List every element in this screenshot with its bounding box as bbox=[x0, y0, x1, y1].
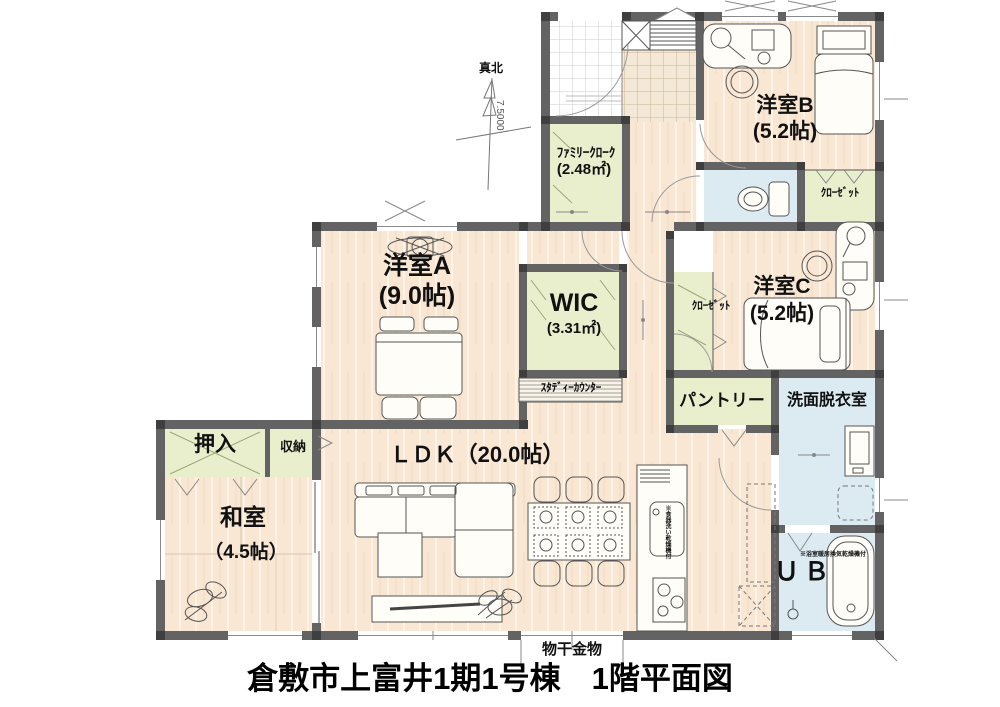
room-size-yoshitsu-a: (9.0帖) bbox=[379, 284, 455, 309]
room-label-family-cloak: ﾌｧﾐﾘｰｸﾛｰｸ bbox=[557, 146, 616, 159]
note-dishwasher: ※食器洗い乾燥機付 bbox=[664, 505, 670, 559]
room-size-family-cloak: (2.48㎡) bbox=[557, 162, 611, 177]
room-size-washitsu: （4.5帖） bbox=[204, 543, 287, 562]
pocket-floor bbox=[527, 231, 619, 264]
room-size-yoshitsu-b: (5.2帖) bbox=[753, 121, 817, 142]
room-label-closet-c: ｸﾛｰｾﾞｯﾄ bbox=[692, 301, 731, 312]
note-laundry-hardware: 物干金物 bbox=[542, 642, 602, 657]
room-size-yoshitsu-c: (5.2帖) bbox=[750, 303, 814, 324]
closet-c-floor bbox=[674, 272, 713, 370]
page-title: 倉敷市上富井1期1号棟 1階平面図 bbox=[247, 663, 733, 694]
room-label-oshiire: 押入 bbox=[194, 434, 236, 455]
room-label-washitsu: 和室 bbox=[220, 506, 266, 529]
room-label-wic: WIC bbox=[550, 291, 599, 316]
washitsu-sliding-doors bbox=[315, 482, 319, 623]
room-size-wic: (3.31㎡) bbox=[547, 321, 601, 336]
tv-board bbox=[372, 596, 502, 622]
bed-b bbox=[815, 26, 873, 134]
room-label-yoshitsu-a: 洋室A bbox=[383, 254, 451, 279]
compass-north-label: 真北 bbox=[479, 62, 503, 74]
kitchen-counter bbox=[637, 465, 687, 631]
room-label-yoshitsu-c: 洋室C bbox=[753, 276, 810, 297]
room-label-yoshitsu-b: 洋室B bbox=[756, 95, 813, 116]
compass-dimension: 7.5000 bbox=[494, 100, 504, 131]
room-label-study-counter: ｽﾀﾃﾞｨｰｶｳﾝﾀｰ bbox=[541, 383, 602, 394]
genkan-tile-floor bbox=[622, 50, 696, 122]
hall-floor bbox=[630, 122, 696, 231]
room-label-closet-b: ｸﾛｰｾﾞｯﾄ bbox=[821, 188, 860, 199]
note-bath-dryer: ※浴室暖房換気乾燥機付 bbox=[800, 552, 866, 558]
entrance-porch-floor bbox=[550, 21, 622, 122]
room-label-storage: 収納 bbox=[280, 440, 306, 453]
room-label-ldk: ＬＤＫ（20.0帖） bbox=[390, 444, 565, 466]
room-label-unit-bath: ＵＢ bbox=[774, 560, 834, 585]
room-label-pantry: パントリー bbox=[679, 392, 765, 409]
north-compass-icon bbox=[456, 78, 531, 190]
floorplan-page: 洋室B (5.2帖) ﾌｧﾐﾘｰｸﾛｰｸ (2.48㎡) ｸﾛｰｾﾞｯﾄ 洋室A… bbox=[0, 0, 1000, 707]
room-label-laundry-room: 洗面脱衣室 bbox=[787, 393, 867, 409]
washstand bbox=[845, 426, 874, 476]
coffee-table bbox=[378, 533, 422, 577]
